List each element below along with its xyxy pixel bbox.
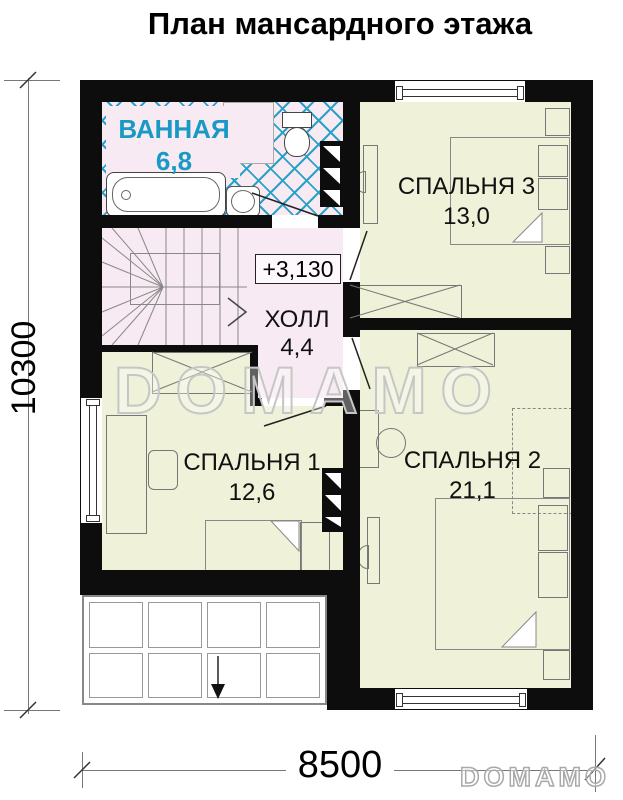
window-pane [398, 696, 524, 704]
watermark-corner: DOMAMO [430, 762, 610, 793]
sink-bowl [231, 190, 255, 213]
balcony-glazing [82, 595, 327, 705]
window-cap [517, 86, 524, 100]
bathroom-door-opening [272, 215, 318, 228]
bedroom3-wardrobe [350, 285, 462, 320]
bedroom2-pillow [538, 505, 568, 551]
stair-rail [130, 253, 220, 305]
bedroom2-area: 21,1 [390, 477, 555, 506]
wall [327, 595, 343, 710]
bedroom2-wardrobe [417, 333, 495, 367]
window-icon [395, 689, 527, 709]
balcony-panel [148, 653, 202, 699]
bathroom-label: ВАННАЯ [104, 114, 244, 145]
bedroom1-bed [205, 520, 302, 572]
balcony-panel [266, 602, 320, 648]
dimension-line-horizontal [82, 770, 286, 771]
bedroom2-nightstand [543, 650, 570, 680]
dimension-extension [595, 735, 596, 792]
balcony-panel [89, 653, 143, 699]
wall [80, 570, 360, 595]
balcony-panel [148, 602, 202, 648]
bedroom2-door-opening [343, 337, 360, 390]
bedroom1-wardrobe [152, 352, 254, 394]
dimension-extension [82, 752, 83, 788]
balcony-panel [266, 653, 320, 699]
sink [226, 186, 260, 217]
vent-shaft [320, 141, 343, 207]
window-icon [395, 81, 525, 102]
bedroom2-pillow [538, 552, 568, 598]
bathroom-area: 6,8 [104, 146, 244, 177]
bedroom1-door-opening [262, 398, 324, 406]
wall [571, 80, 593, 710]
window-pane [398, 89, 522, 97]
window-cap [86, 399, 100, 406]
wall [102, 215, 360, 228]
dimension-extension [4, 80, 60, 81]
bathtub-drain [121, 190, 131, 200]
window-cap [519, 693, 526, 707]
window-cap [86, 515, 100, 522]
bedroom1-area: 12,6 [172, 479, 332, 508]
toilet-bowl [284, 127, 310, 157]
balcony-panel [207, 602, 261, 648]
wall [102, 345, 258, 352]
bedroom1-desk [106, 415, 147, 534]
bedroom3-door-opening [343, 228, 360, 282]
balcony-panel [89, 602, 143, 648]
wall [343, 102, 360, 710]
dimension-width: 8500 [286, 744, 394, 787]
bedroom3-label: СПАЛЬНЯ 3 [384, 173, 549, 202]
hall-area: 4,4 [250, 334, 344, 363]
bathtub [106, 172, 226, 217]
window-pane [89, 401, 97, 520]
bedroom2-label: СПАЛЬНЯ 2 [390, 447, 555, 476]
bedroom1-label: СПАЛЬНЯ 1 [172, 449, 332, 478]
window-icon [81, 398, 102, 523]
dimension-height: 10300 [4, 284, 44, 452]
wall [343, 318, 571, 330]
window-cap [396, 693, 403, 707]
bedroom3-nightstand [545, 108, 570, 136]
toilet-tank [282, 112, 312, 128]
hall-label: ХОЛЛ [250, 306, 344, 335]
dimension-extension [4, 710, 60, 711]
bedroom3-area: 13,0 [384, 203, 549, 232]
window-cap [396, 86, 403, 100]
page-title: План мансардного этажа [80, 6, 600, 42]
balcony-panel [207, 653, 261, 699]
floorplan-page: План мансардного этажа [0, 0, 623, 800]
bedroom3-nightstand [545, 246, 570, 274]
elevation-mark: +3,130 [255, 254, 341, 284]
dimension-line-horizontal [394, 770, 595, 771]
